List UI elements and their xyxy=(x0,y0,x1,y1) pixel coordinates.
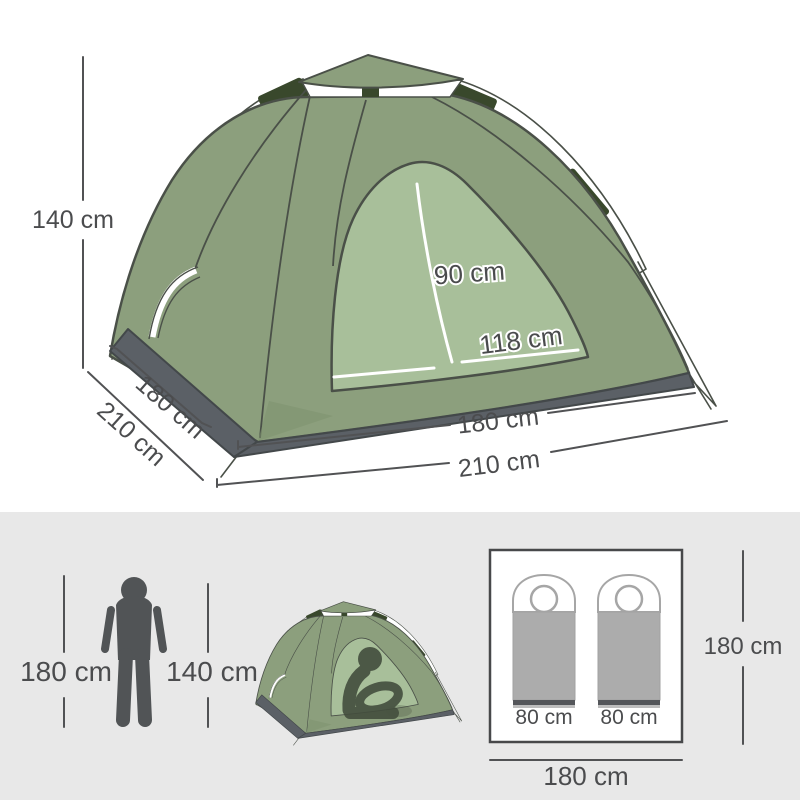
product-dimension-diagram: 140 cm 180 cm 210 cm 180 cm 210 cm 90 cm… xyxy=(0,0,800,800)
bag-right-width-label: 80 cm xyxy=(600,706,657,729)
small-tent-height-label: 140 cm xyxy=(166,656,258,687)
sleeping-bag-body xyxy=(598,612,660,700)
sleeping-bag-left xyxy=(513,575,575,708)
person-height-label: 180 cm xyxy=(20,656,112,687)
diagram-canvas: 140 cm 180 cm 210 cm 180 cm 210 cm 90 cm… xyxy=(0,0,800,800)
tent-height-label: 140 cm xyxy=(32,206,114,234)
sleeping-bag-pillow xyxy=(616,586,642,612)
sitting-person-shadow xyxy=(386,705,412,717)
sleeping-bag-footband xyxy=(598,700,660,705)
sleeping-bag-right xyxy=(598,575,660,708)
sleeping-bag-body xyxy=(513,612,575,700)
sleeping-bag-footband xyxy=(513,700,575,705)
floorplan-bottom-length-label: 180 cm xyxy=(543,761,628,791)
bag-left-width-label: 80 cm xyxy=(515,706,572,729)
person-right-leg xyxy=(142,655,145,720)
sleeping-bag-pillow xyxy=(531,586,557,612)
floorplan-side-length-label: 180 cm xyxy=(704,633,783,660)
person-left-leg xyxy=(123,655,126,720)
door-height-label: 90 cm xyxy=(433,256,506,291)
